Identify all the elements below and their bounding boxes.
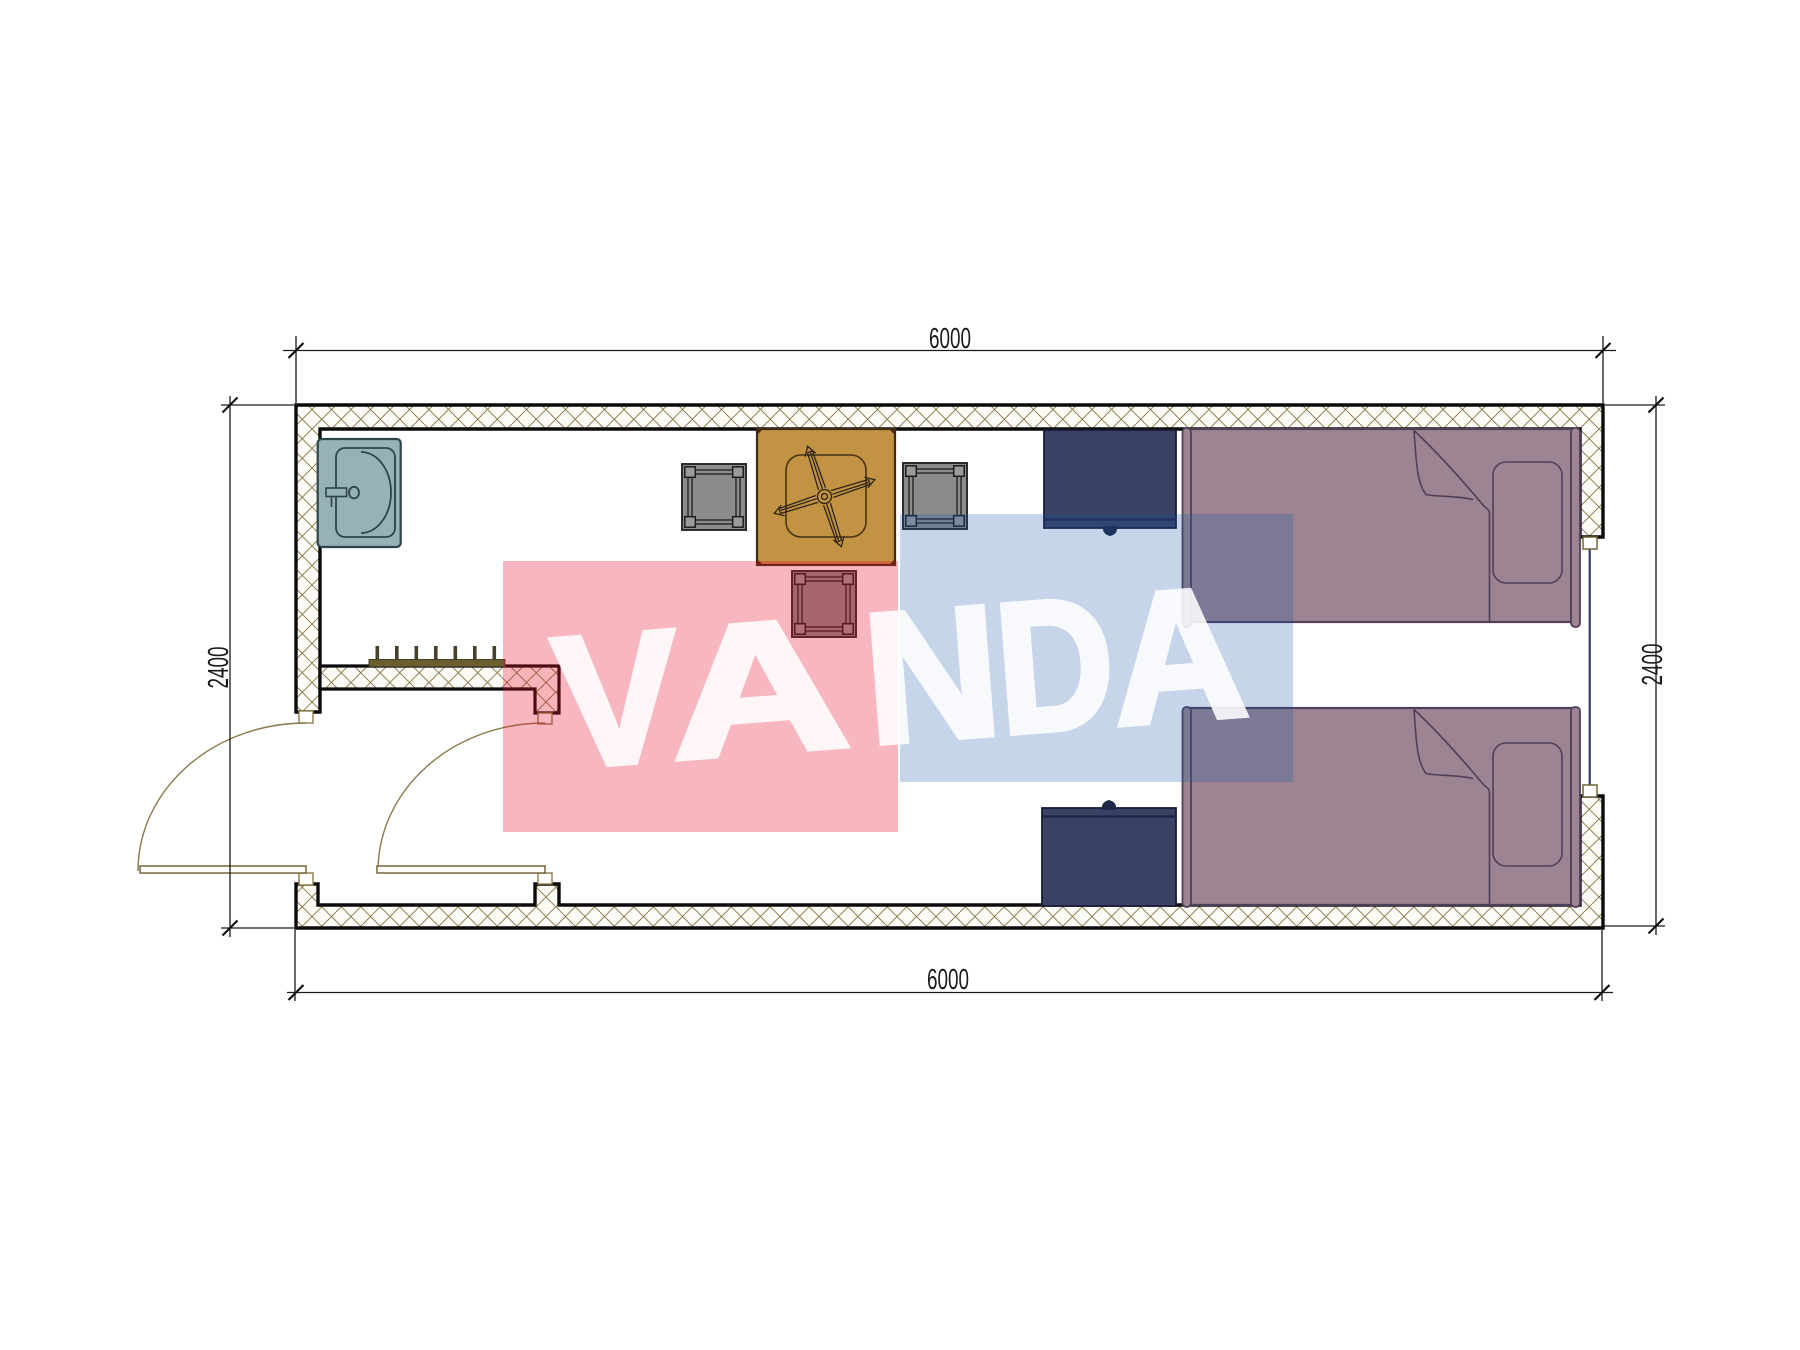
svg-text:6000: 6000: [929, 323, 971, 355]
svg-text:D: D: [989, 557, 1121, 773]
svg-text:N: N: [857, 567, 1007, 784]
svg-text:2400: 2400: [1637, 644, 1669, 686]
svg-text:A: A: [661, 578, 855, 798]
svg-text:6000: 6000: [927, 964, 969, 996]
svg-text:A: A: [1104, 548, 1254, 765]
svg-text:2400: 2400: [203, 647, 235, 689]
